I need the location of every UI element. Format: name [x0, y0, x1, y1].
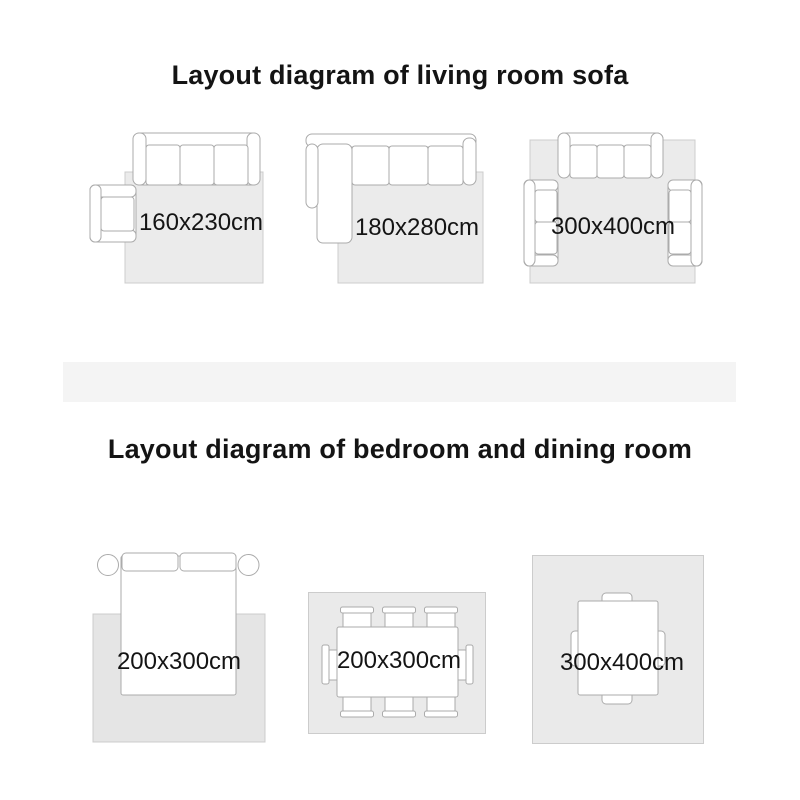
diagram-sectional-180x280: 180x280cm — [300, 128, 490, 286]
sofa-armchair-drawing — [88, 128, 268, 286]
bottom-chairs-icon — [341, 695, 458, 717]
diagram-table-300x400: 300x400cm — [528, 550, 708, 748]
diagram-sofa-160x230: 160x230cm — [88, 128, 268, 286]
diagram-sofa-300x400: 300x400cm — [518, 128, 708, 286]
diagram-dining-200x300: 200x300cm — [305, 585, 490, 740]
sectional-sofa-drawing — [300, 128, 490, 286]
pillow-icon — [122, 553, 178, 571]
pillow-icon — [180, 553, 236, 571]
right-nightstand-icon — [238, 555, 259, 576]
three-seat-sofa-icon — [558, 133, 663, 178]
size-label: 200x300cm — [337, 647, 461, 675]
living-room-section-title: Layout diagram of living room sofa — [0, 60, 800, 91]
sofa-loveseats-drawing — [518, 128, 708, 286]
size-label: 300x400cm — [551, 213, 675, 241]
top-chairs-icon — [341, 607, 458, 629]
size-label: 300x400cm — [560, 649, 684, 677]
size-label: 200x300cm — [117, 648, 241, 676]
table-icon — [578, 601, 658, 695]
rug-size-guide-image: Layout diagram of living room sofa — [0, 0, 800, 800]
size-label: 180x280cm — [355, 214, 479, 242]
bedroom-dining-section-title: Layout diagram of bedroom and dining roo… — [0, 434, 800, 465]
section-divider — [63, 362, 736, 402]
armchair-icon — [90, 185, 136, 242]
left-nightstand-icon — [98, 555, 119, 576]
three-seat-sofa-icon — [133, 133, 260, 185]
diagram-bed-200x300: 200x300cm — [88, 548, 273, 748]
size-label: 160x230cm — [139, 209, 263, 237]
